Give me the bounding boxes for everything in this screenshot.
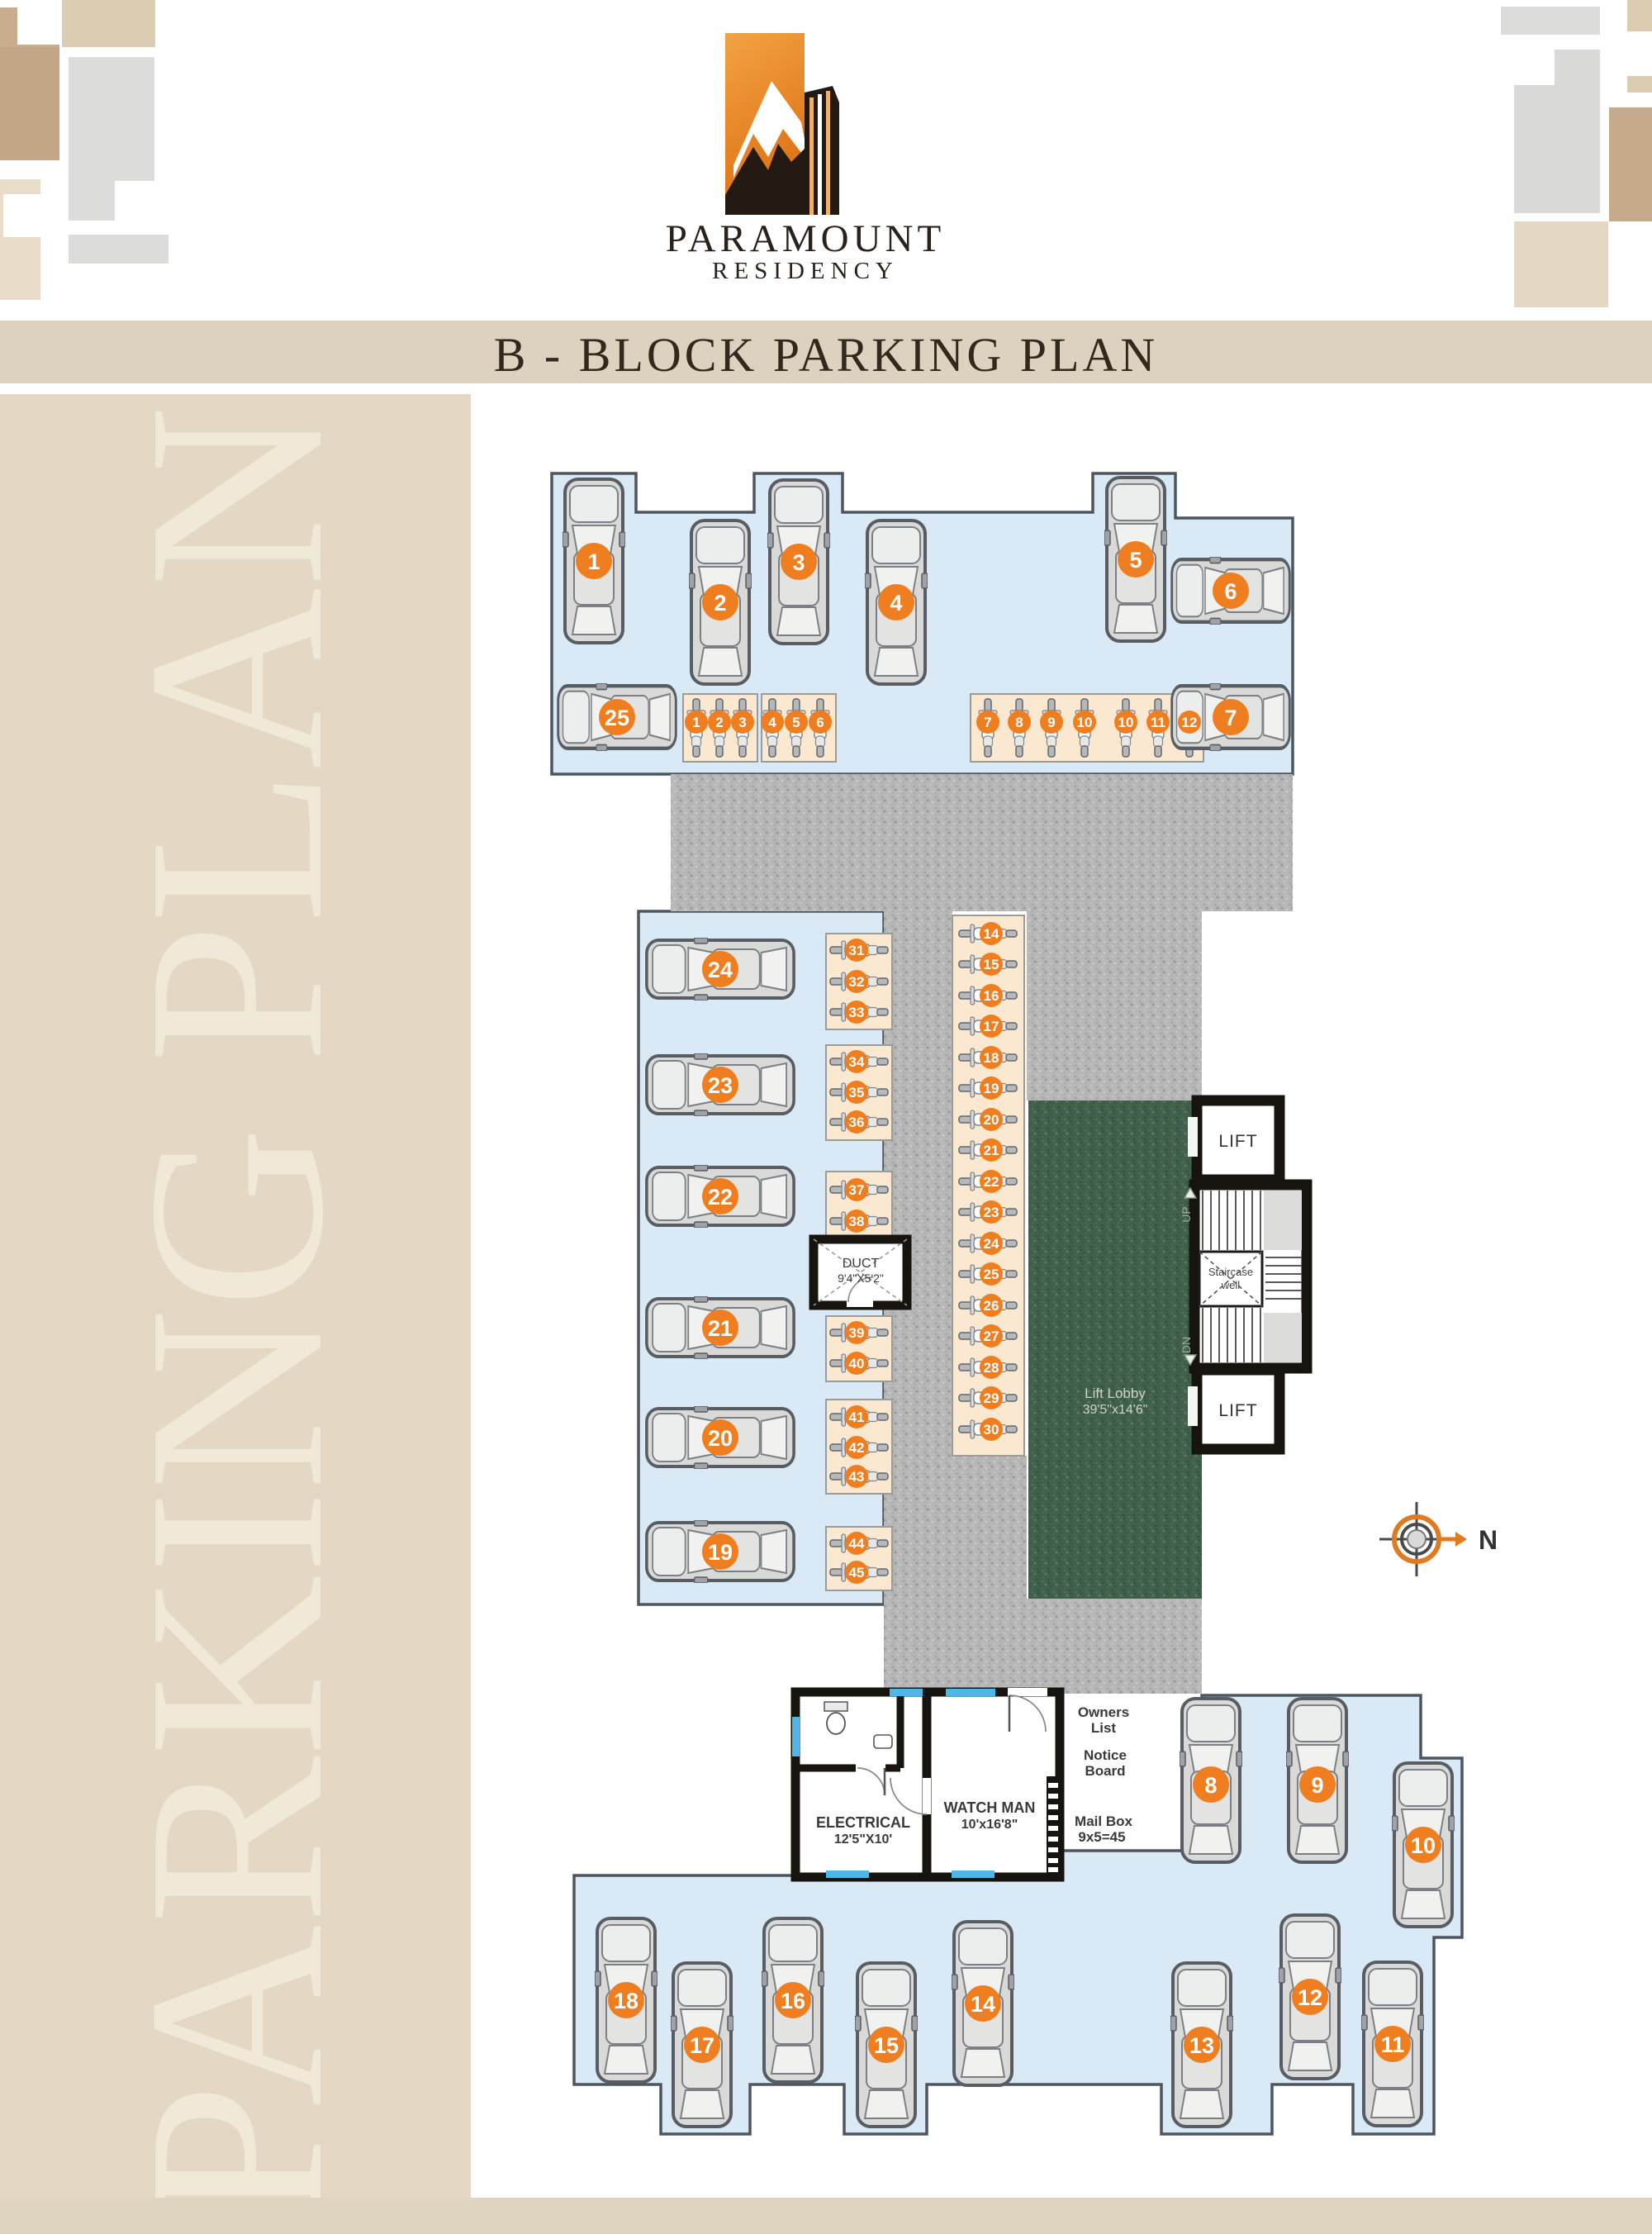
bike-badge: 11: [1151, 715, 1165, 730]
car-badge: 21: [708, 1316, 733, 1341]
car-badge: 20: [708, 1426, 733, 1451]
bike-badge: 4: [768, 715, 776, 730]
bike-badge: 24: [984, 1236, 999, 1252]
car-badge: 25: [605, 706, 629, 730]
mail-box-label-2: 9x5=45: [1078, 1829, 1125, 1845]
watchman-size: 10'x16'8": [961, 1818, 1018, 1832]
lift-lobby-size: 39'5"x14'6": [1083, 1403, 1148, 1417]
bike-badge: 17: [984, 1019, 999, 1034]
car-badge: 5: [1129, 548, 1142, 573]
car-badge: 7: [1224, 706, 1237, 730]
bike-badge: 7: [984, 715, 991, 730]
bike-badge: 30: [984, 1422, 999, 1438]
bike-badge: 9: [1047, 715, 1055, 730]
notice-board-label-2: Board: [1085, 1763, 1125, 1779]
staircase-well-label-1: Staircase: [1208, 1266, 1253, 1278]
bike-badge: 16: [984, 988, 999, 1004]
compass: N: [1379, 1502, 1498, 1576]
bike-badge: 34: [849, 1054, 865, 1070]
car-badge: 3: [792, 550, 805, 575]
car-badge: 8: [1204, 1773, 1217, 1798]
bike-badge: 40: [849, 1356, 865, 1371]
bike-badge: 21: [984, 1143, 999, 1158]
electrical-size: 12'5"X10': [834, 1832, 892, 1847]
car-badge: 22: [708, 1185, 733, 1210]
bike-badge: 14: [984, 926, 999, 942]
bike-badge: 10: [1077, 715, 1093, 730]
car-badge: 19: [708, 1540, 733, 1565]
car-badge: 15: [874, 2033, 899, 2058]
stairs-dn-label: DN: [1180, 1337, 1193, 1353]
lift-top-label: LIFT: [1218, 1132, 1257, 1151]
electrical-label: ELECTRICAL: [816, 1814, 910, 1831]
duct-room: DUCT 9'4"X5'2": [814, 1239, 907, 1307]
bike-badge: 36: [849, 1115, 865, 1130]
page: PARAMOUNT RESIDENCY B - BLOCK PARKING PL…: [0, 0, 1652, 2234]
utility-rooms-block: ELECTRICAL 12'5"X10' WATCH MAN 10'x16'8": [792, 1688, 1060, 1878]
bike-badge: 15: [984, 957, 999, 972]
duct-size: 9'4"X5'2": [838, 1271, 884, 1285]
bike-badge: 3: [738, 715, 746, 730]
bike-badge: 29: [984, 1390, 999, 1406]
side-labels: Owners List Notice Board Mail Box 9x5=45: [1075, 1704, 1132, 1845]
bike-badge: 44: [849, 1536, 865, 1552]
bike-badge: 19: [984, 1081, 999, 1096]
bike-badge: 37: [849, 1182, 865, 1198]
bike-badge: 5: [792, 715, 800, 730]
car-badge: 13: [1189, 2033, 1214, 2058]
owners-list-label-2: List: [1091, 1720, 1117, 1736]
car-badge: 18: [614, 1989, 638, 2013]
bike-badge: 33: [849, 1005, 865, 1020]
bike-badge: 27: [984, 1329, 999, 1344]
bike-badge: 32: [849, 974, 865, 990]
bike-badge: 26: [984, 1298, 999, 1314]
car-badge: 9: [1311, 1773, 1323, 1798]
owners-list-label-1: Owners: [1078, 1704, 1129, 1720]
bike-badge: 31: [849, 943, 865, 958]
car-badge: 16: [781, 1989, 805, 2013]
bike-badge: 28: [984, 1360, 999, 1376]
stairs-up-label: UP: [1180, 1206, 1193, 1222]
mail-box-label-1: Mail Box: [1075, 1813, 1132, 1829]
car-badge: 11: [1381, 2032, 1405, 2057]
parking-floor-plan: Lift Lobby 39'5"x14'6": [0, 0, 1652, 2234]
car-badge: 12: [1298, 1985, 1322, 2010]
car-badge: 1: [587, 549, 600, 574]
duct-label: DUCT: [843, 1257, 880, 1271]
bike-badge: 39: [849, 1325, 865, 1341]
north-label: N: [1479, 1525, 1498, 1555]
bike-badge: 12: [1182, 715, 1198, 730]
bike-badge: 22: [984, 1174, 999, 1190]
lift-lobby-area: [1028, 1100, 1202, 1599]
car-badge: 10: [1411, 1833, 1436, 1858]
car-badge: 14: [971, 1992, 995, 2017]
bike-badge: 41: [849, 1409, 865, 1425]
bike-badge: 35: [849, 1085, 865, 1100]
lift-lobby-label: Lift Lobby: [1085, 1386, 1146, 1401]
bike-badge: 38: [849, 1214, 865, 1229]
mailbox-slots: [1047, 1776, 1060, 1875]
lift-bottom-label: LIFT: [1218, 1401, 1257, 1420]
car-badge: 2: [714, 591, 726, 616]
car-badge: 24: [708, 958, 733, 982]
bike-badge: 45: [849, 1565, 865, 1580]
bike-badge: 43: [849, 1469, 865, 1485]
bike-badge: 1: [692, 715, 700, 730]
car-badge: 23: [708, 1073, 733, 1098]
bike-badge: 20: [984, 1112, 999, 1128]
bike-badge: 25: [984, 1267, 999, 1282]
car-badge: 17: [690, 2033, 714, 2058]
staircase-well-label-2: well: [1221, 1279, 1241, 1291]
bike-badge: 42: [849, 1440, 865, 1456]
car-badge: 4: [890, 591, 902, 616]
bike-badge: 8: [1015, 715, 1023, 730]
bike-badge: 18: [984, 1050, 999, 1066]
bike-badge: 2: [715, 715, 723, 730]
staircase-well: Staircase well: [1199, 1252, 1262, 1306]
notice-board-label-1: Notice: [1084, 1747, 1127, 1763]
bike-badge: 6: [816, 715, 824, 730]
bike-badge: 10: [1118, 715, 1134, 730]
lift-staircase-block: LIFT Staircase well UP DN LIFT: [1180, 1100, 1307, 1449]
car-badge: 6: [1224, 579, 1237, 604]
north-arrow-icon: [1455, 1532, 1467, 1547]
watchman-label: WATCH MAN: [944, 1799, 1036, 1816]
bike-badge: 23: [984, 1205, 999, 1220]
